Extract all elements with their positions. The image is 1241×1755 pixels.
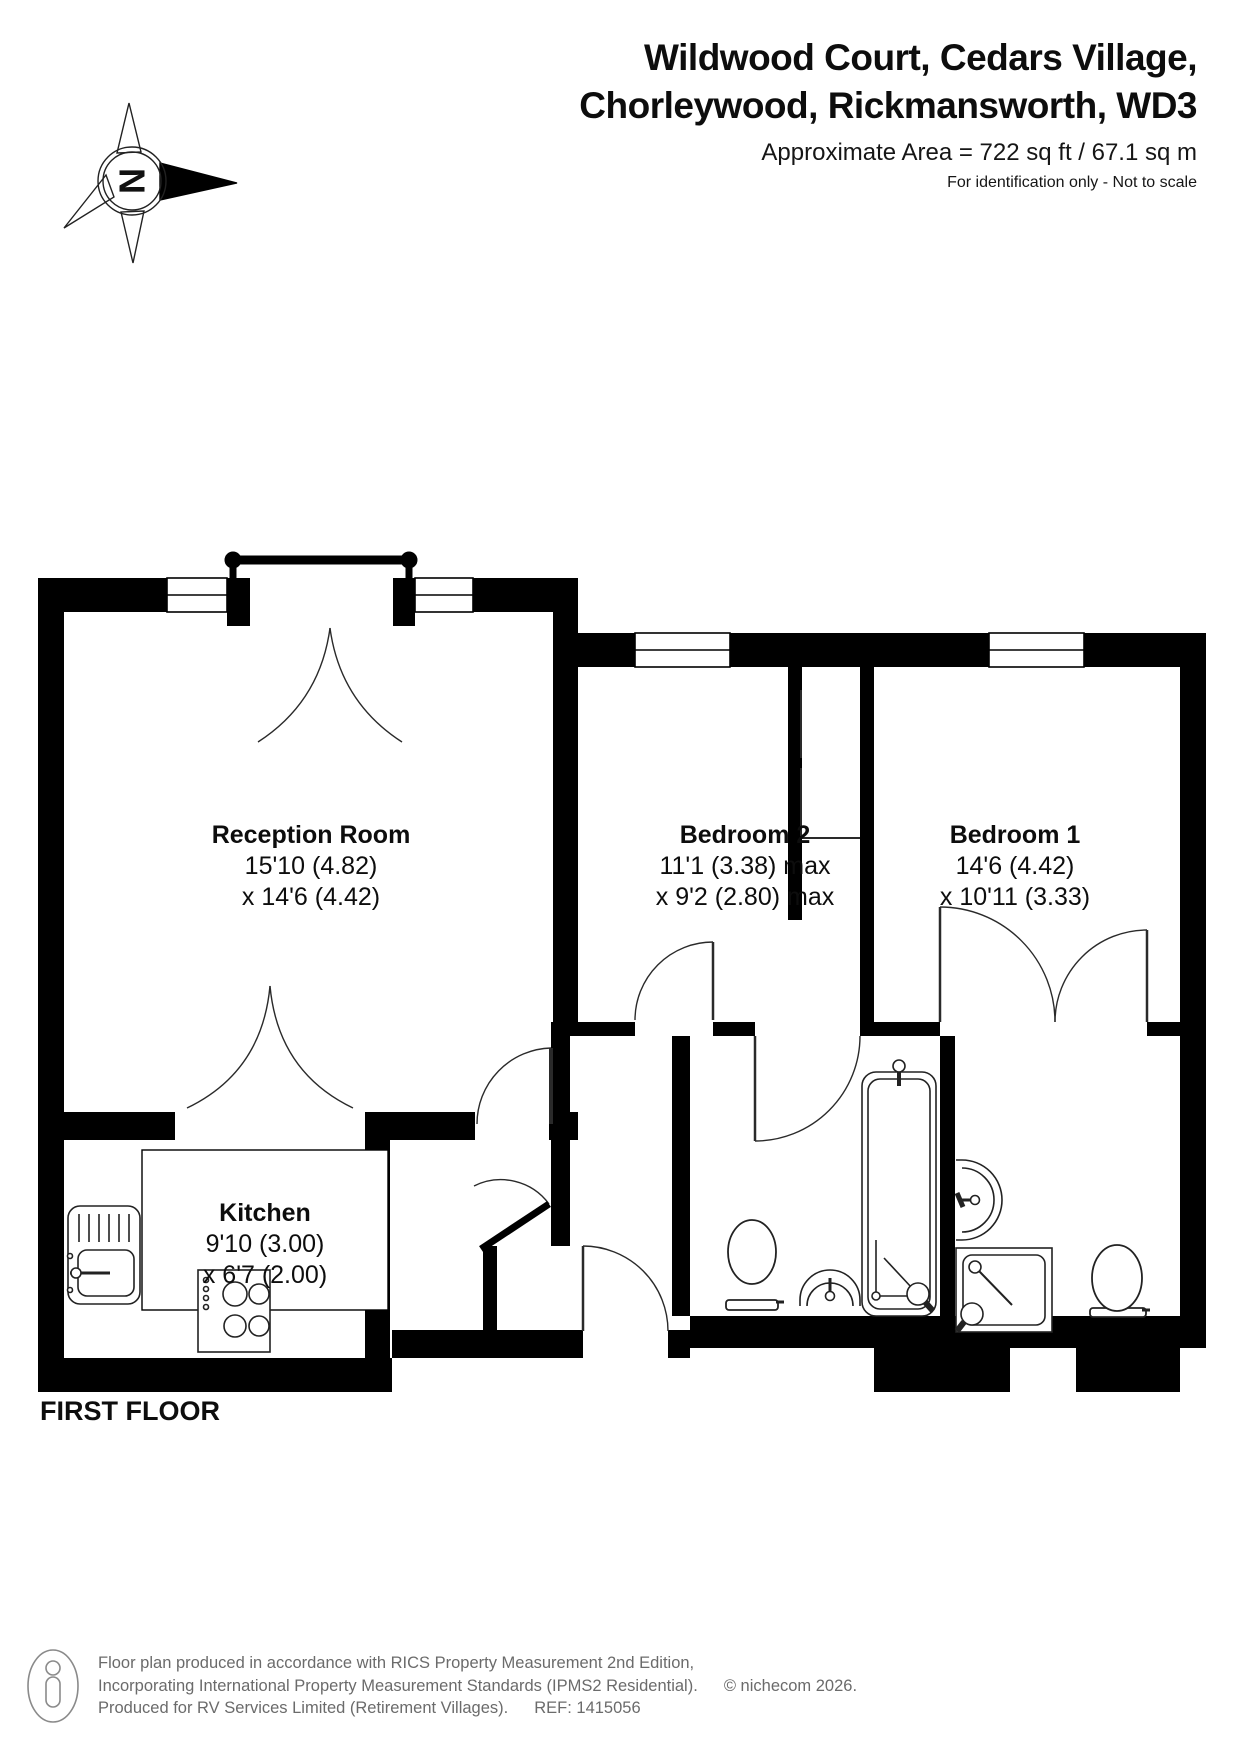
area-text: Approximate Area = 722 sq ft / 67.1 sq m: [579, 139, 1197, 167]
room-dim: x 14'6 (4.42): [161, 882, 461, 913]
floor-plan-page: N: [0, 0, 1241, 1755]
entrance-door: [583, 1246, 668, 1331]
cupboard-door: [474, 1180, 549, 1249]
compass-north-icon: N: [64, 103, 237, 263]
room-dim: x 6'7 (2.00): [142, 1260, 388, 1291]
room-label-kitchen: Kitchen 9'10 (3.00) x 6'7 (2.00): [142, 1198, 388, 1291]
room-dim: x 10'11 (3.33): [865, 882, 1165, 913]
ensuite-door: [1055, 930, 1147, 1022]
header: Wildwood Court, Cedars Village, Chorleyw…: [579, 34, 1197, 192]
room-label-bedroom1: Bedroom 1 14'6 (4.42) x 10'11 (3.33): [865, 820, 1165, 913]
person-icon: [26, 1648, 82, 1724]
title-line-2: Chorleywood, Rickmansworth, WD3: [579, 82, 1197, 130]
hand-basin-icon: [800, 1270, 860, 1306]
shower-icon: [956, 1248, 1052, 1332]
bathtub-icon: [862, 1060, 936, 1316]
footer-line-2: Incorporating International Property Mea…: [98, 1675, 857, 1698]
reference-number: REF: 1415056: [534, 1699, 640, 1717]
disclaimer-text: For identification only - Not to scale: [579, 174, 1197, 192]
toilet-icon: [726, 1220, 784, 1310]
footer-line-3: Produced for RV Services Limited (Retire…: [98, 1697, 857, 1720]
room-label-reception: Reception Room 15'10 (4.82) x 14'6 (4.42…: [161, 820, 461, 913]
svg-text:N: N: [112, 168, 153, 194]
window: [415, 578, 473, 612]
ensuite-toilet-icon: [1090, 1245, 1150, 1317]
footer: Floor plan produced in accordance with R…: [26, 1648, 857, 1724]
closet-partition: [801, 690, 860, 838]
french-doors: [258, 628, 402, 742]
window: [989, 633, 1084, 667]
footer-line-3-text: Produced for RV Services Limited (Retire…: [98, 1699, 508, 1717]
room-name: Kitchen: [142, 1198, 388, 1229]
room-name: Reception Room: [161, 820, 461, 851]
room-name: Bedroom 1: [865, 820, 1165, 851]
reception-door: [477, 1048, 551, 1124]
bedroom1-door: [940, 907, 1055, 1022]
bedroom2-door: [635, 942, 713, 1020]
footer-line-1: Floor plan produced in accordance with R…: [98, 1652, 857, 1675]
room-label-bedroom2: Bedroom 2 11'1 (3.38) max x 9'2 (2.80) m…: [595, 820, 895, 913]
title-line-1: Wildwood Court, Cedars Village,: [579, 34, 1197, 82]
window: [167, 578, 227, 612]
room-dim: 9'10 (3.00): [142, 1229, 388, 1260]
kitchen-double-door: [187, 986, 353, 1108]
footer-text: Floor plan produced in accordance with R…: [98, 1652, 857, 1720]
room-dim: x 9'2 (2.80) max: [595, 882, 895, 913]
balcony-rail: [225, 552, 417, 604]
room-dim: 11'1 (3.38) max: [595, 851, 895, 882]
page-title: Wildwood Court, Cedars Village, Chorleyw…: [579, 34, 1197, 130]
kitchen-sink-icon: [68, 1206, 141, 1304]
ensuite-basin-icon: [956, 1160, 1002, 1240]
copyright-text: © nichecom 2026.: [724, 1677, 857, 1695]
window: [635, 633, 730, 667]
footer-line-2-text: Incorporating International Property Mea…: [98, 1677, 698, 1695]
floor-label: FIRST FLOOR: [40, 1396, 220, 1427]
room-name: Bedroom 2: [595, 820, 895, 851]
bathroom-door: [755, 1036, 860, 1141]
room-dim: 15'10 (4.82): [161, 851, 461, 882]
room-dim: 14'6 (4.42): [865, 851, 1165, 882]
